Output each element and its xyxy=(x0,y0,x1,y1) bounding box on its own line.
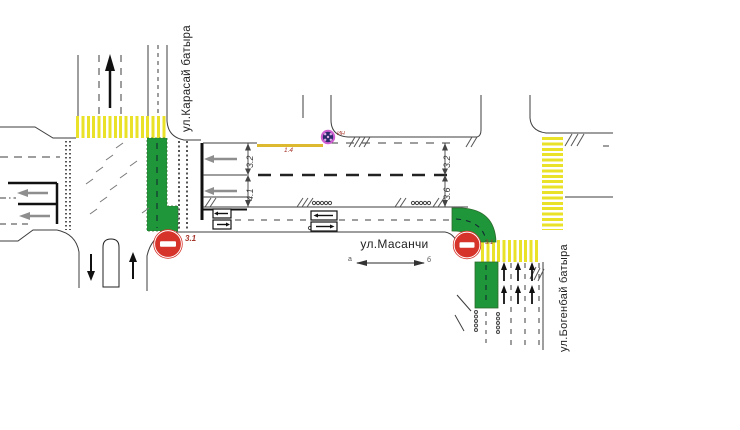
street-name-karasai: ул.Карасай батыра xyxy=(181,25,193,132)
speed-bump-icon xyxy=(322,131,334,143)
traffic-island xyxy=(103,239,119,287)
dim-label-left-lane1: 3.2 xyxy=(245,155,255,168)
masanchi-east-curbs xyxy=(530,95,613,197)
section-marker-b: б xyxy=(427,257,431,264)
no-entry-sign-icon xyxy=(453,231,481,259)
lane-arrow-up-icon xyxy=(129,252,137,279)
no-entry-sign-icon xyxy=(154,230,183,259)
dim-label-left-lane2: 4.1 xyxy=(245,188,255,201)
sign-label-3-1-right: 3.1 xyxy=(485,240,493,246)
street-name-bogenbai: ул.Богенбай батыра xyxy=(558,244,570,352)
lane-arrow-up-icon xyxy=(105,54,115,108)
section-arrow xyxy=(356,260,425,266)
marking-label-1-4: 1.4 xyxy=(284,147,293,154)
hump-marker-label: ИН xyxy=(337,131,345,137)
lane-arrow-down-icon xyxy=(87,254,95,281)
traffic-scheme-canvas: ул.Карасай батыра ул.Масанчи ул.Богенбай… xyxy=(0,0,740,430)
karasai-south-leg xyxy=(57,230,165,291)
dim-label-right-lane1: 3.2 xyxy=(442,155,452,168)
sign-label-3-1-left: 3.1 xyxy=(185,234,196,243)
west-road xyxy=(0,127,76,241)
bogenbai-street xyxy=(452,208,544,350)
bus-lane-karasai xyxy=(147,138,178,231)
section-marker-a: а xyxy=(348,256,352,263)
masanchi-street xyxy=(165,143,468,249)
delineator-chain xyxy=(475,311,500,334)
turn-guide-dashes xyxy=(86,143,149,214)
dim-label-right-lane2: 3.6 xyxy=(442,187,452,200)
street-name-masanchi: ул.Масанчи xyxy=(352,237,437,251)
scheme-linework xyxy=(0,0,740,430)
